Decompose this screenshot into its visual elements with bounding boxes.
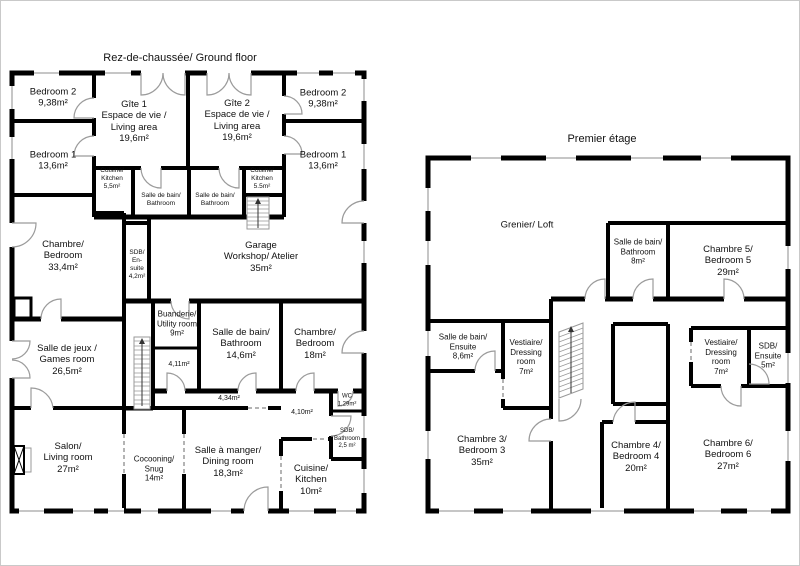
ground-floor-title: Rez-de-chaussée/ Ground floor xyxy=(103,52,256,64)
first-floor-title: Premier étage xyxy=(567,133,636,145)
room-label-snug: Cocooning/ Snug 14m² xyxy=(134,455,174,484)
room-label-loft: Grenier/ Loft xyxy=(501,219,554,230)
floor-plan-canvas: Rez-de-chaussée/ Ground floor Premier ét… xyxy=(0,0,800,566)
room-label-gite-2: Gîte 2 Espace de vie / Living area 19,6m… xyxy=(205,98,270,144)
room-label-utility-room: Buanderie/ Utility room 9m² xyxy=(157,310,197,339)
wood-stove-icon xyxy=(14,446,31,474)
room-label-master-bedroom: Chambre/ Bedroom 33,4m² xyxy=(42,239,84,273)
room-label-hall-411: 4,11m² xyxy=(168,361,189,369)
room-label-gite-1: Gîte 1 Espace de vie / Living area 19,6m… xyxy=(102,99,167,145)
room-label-games-room: Salle de jeux / Games room 26,5m² xyxy=(37,343,97,377)
room-label-hall-434: 4,34m² xyxy=(218,395,240,403)
room-label-wc: WC 1,29m² xyxy=(338,394,357,409)
room-label-bedroom-2-right: Bedroom 2 9,38m² xyxy=(300,88,346,111)
room-label-bedroom-18: Chambre/ Bedroom 18m² xyxy=(294,327,336,361)
room-label-bathroom-146: Salle de bain/ Bathroom 14,6m² xyxy=(212,327,270,361)
room-label-ensuite-86: Salle de bain/ Ensuite 8,6m² xyxy=(439,333,487,362)
room-label-bathroom-mid-left: Salle de bain/ Bathroom xyxy=(141,192,180,208)
room-label-kitchen-right: Cuisine/ Kitchen 5.5m² xyxy=(250,167,273,191)
room-label-bedroom-2-left: Bedroom 2 9,38m² xyxy=(30,87,76,110)
stairs-ground-right xyxy=(247,197,269,229)
room-label-kitchen-10: Cuisine/ Kitchen 10m² xyxy=(294,463,328,497)
room-label-dressing-left: Vestiaire/ Dressing room 7m² xyxy=(510,338,543,376)
room-label-dressing-right: Vestiaire/ Dressing room 7m² xyxy=(705,338,738,376)
room-label-sdb-ensuite-5: SDB/ Ensuite 5m² xyxy=(755,342,782,371)
room-label-hall-410: 4,10m² xyxy=(291,409,313,417)
room-label-garage: Garage Workshop/ Atelier 35m² xyxy=(224,240,298,274)
room-label-sdb-25: SDB/ Bathroom 2,5 m² xyxy=(334,428,360,451)
stairs-first-floor xyxy=(559,323,583,398)
room-label-bedroom-5: Chambre 5/ Bedroom 5 29m² xyxy=(693,244,764,278)
floorplan-svg xyxy=(1,1,799,565)
room-label-bedroom-1-left: Bedroom 1 13,6m² xyxy=(30,150,76,173)
room-label-dining-room: Salle à manger/ Dining room 18,3m² xyxy=(195,445,262,479)
stairs-ground-left xyxy=(134,337,150,409)
room-label-kitchen-left: Cuisine/ Kitchen 5,5m² xyxy=(100,167,123,191)
room-label-sdb-ensuite: SDB/ En- suite 4,2m² xyxy=(129,249,146,282)
room-label-bedroom-4: Chambre 4/ Bedroom 4 20m² xyxy=(611,440,661,474)
room-label-bathroom-8: Salle de bain/ Bathroom 8m² xyxy=(614,238,662,267)
room-label-bathroom-mid-right: Salle de bain/ Bathroom xyxy=(195,192,234,208)
room-label-living-room: Salon/ Living room 27m² xyxy=(43,441,92,475)
room-label-bedroom-6: Chambre 6/ Bedroom 6 27m² xyxy=(703,438,753,472)
room-label-bedroom-3: Chambre 3/ Bedroom 3 35m² xyxy=(457,434,507,468)
room-label-bedroom-1-right: Bedroom 1 13,6m² xyxy=(300,150,346,173)
